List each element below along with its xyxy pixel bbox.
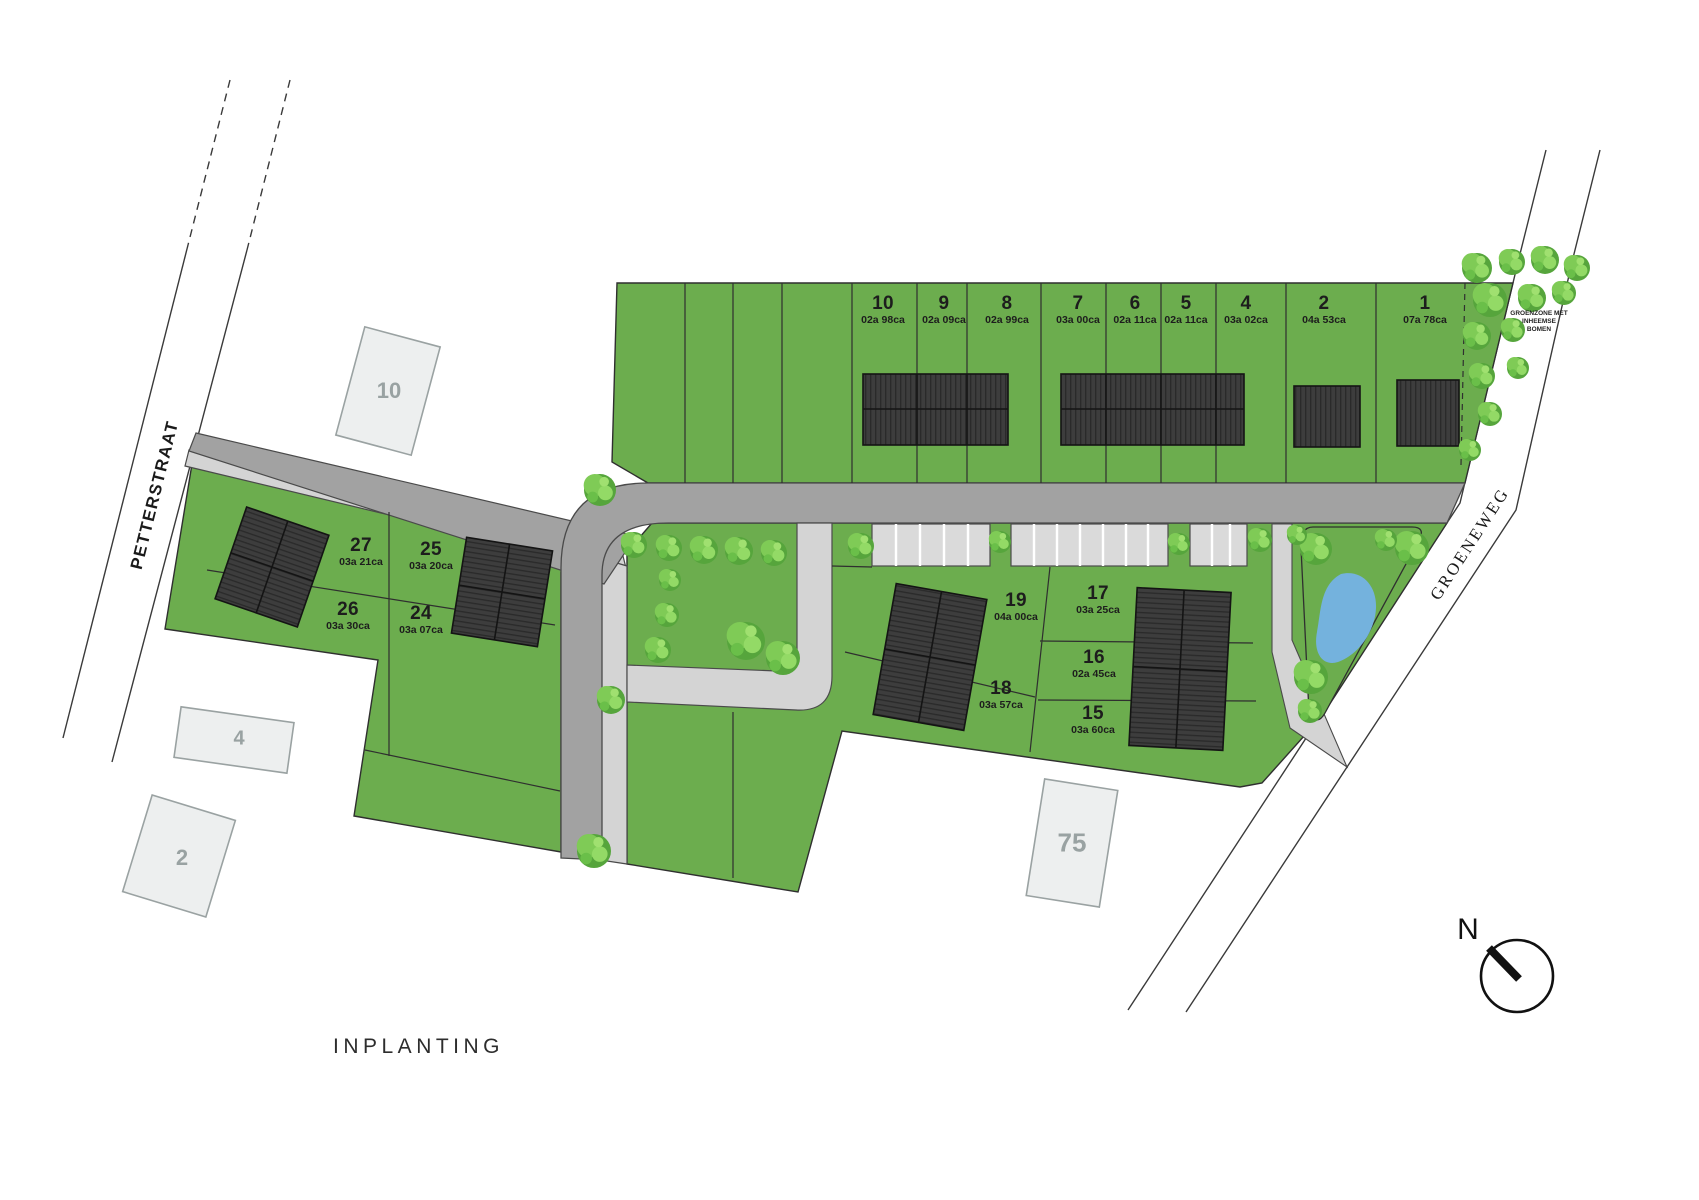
building-lots-17-15: [1129, 588, 1231, 751]
lot-label-16[interactable]: 1602a 45ca: [1072, 648, 1116, 680]
building-lot-1: [1397, 380, 1459, 446]
lot-label-27[interactable]: 2703a 21ca: [339, 536, 383, 568]
lot-label-25[interactable]: 2503a 20ca: [409, 540, 453, 572]
existing-building-label-4: 4: [233, 728, 244, 751]
lot-label-2[interactable]: 204a 53ca: [1302, 294, 1346, 326]
page-title: INPLANTING: [333, 1035, 504, 1059]
lot-label-6[interactable]: 602a 11ca: [1113, 294, 1156, 326]
lot-label-7[interactable]: 703a 00ca: [1056, 294, 1100, 326]
building-row-lots-7-4: [1061, 374, 1244, 445]
lot-label-8[interactable]: 802a 99ca: [985, 294, 1029, 326]
lot-label-18[interactable]: 1803a 57ca: [979, 679, 1023, 711]
lot-label-17[interactable]: 1703a 25ca: [1076, 584, 1120, 616]
north-label: N: [1457, 913, 1479, 947]
existing-building-label-10: 10: [377, 378, 401, 404]
parking-strip: [872, 524, 1247, 566]
building-lot-2: [1294, 386, 1360, 447]
existing-building-label-2: 2: [176, 845, 188, 871]
building-row-lots-10-8: [863, 374, 1008, 445]
existing-building-label-75: 75: [1058, 828, 1087, 859]
lot-label-9[interactable]: 902a 09ca: [922, 294, 966, 326]
site-plan: PETTERSTRAAT GROENEWEG GROENZONE MET INH…: [0, 0, 1699, 1200]
lot-label-24[interactable]: 2403a 07ca: [399, 604, 443, 636]
lot-label-5[interactable]: 502a 11ca: [1164, 294, 1207, 326]
lot-label-26[interactable]: 2603a 30ca: [326, 600, 370, 632]
lot-label-15[interactable]: 1503a 60ca: [1071, 704, 1115, 736]
greenzone-note: GROENZONE MET INHEEMSE BOMEN: [1494, 310, 1584, 334]
lot-label-19[interactable]: 1904a 00ca: [994, 591, 1038, 623]
building-lots-25-24: [451, 537, 552, 646]
lot-label-1[interactable]: 107a 78ca: [1403, 294, 1447, 326]
north-compass-icon: [1481, 940, 1553, 1012]
lot-label-10[interactable]: 1002a 98ca: [861, 294, 905, 326]
lot-label-4[interactable]: 403a 02ca: [1224, 294, 1268, 326]
